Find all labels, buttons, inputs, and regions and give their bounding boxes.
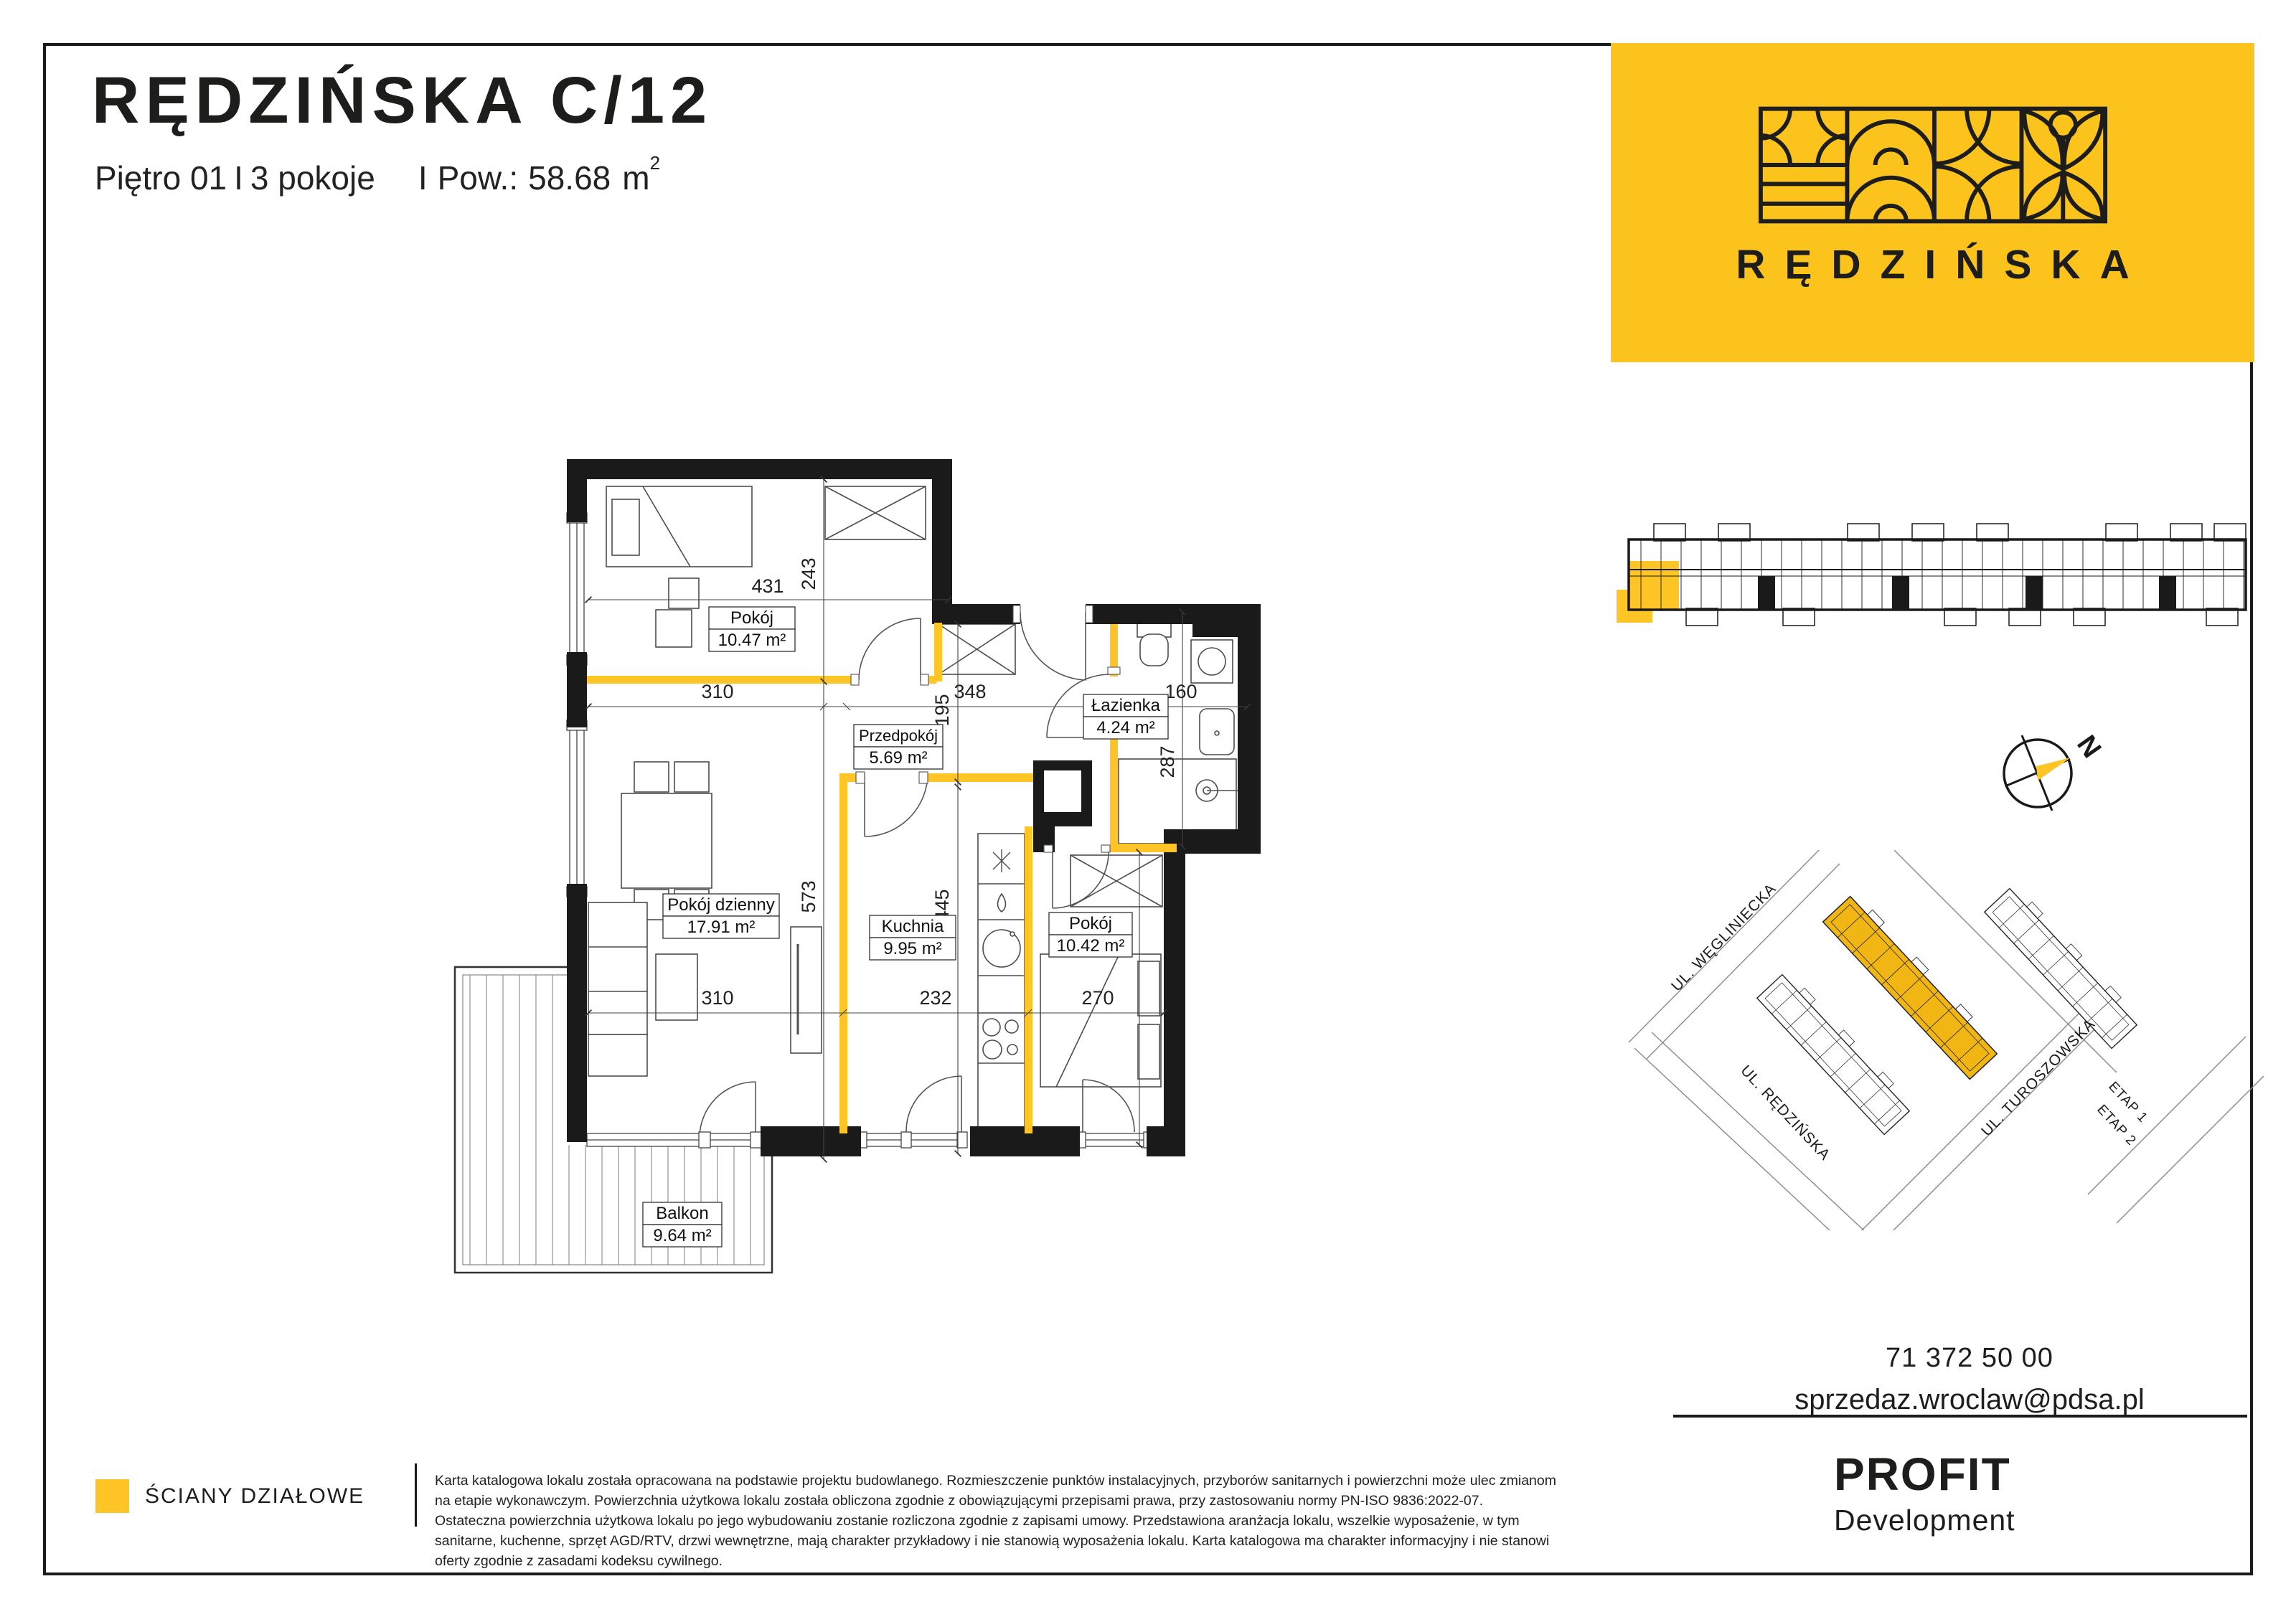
shaft bbox=[1044, 770, 1081, 812]
svg-text:4.24 m²: 4.24 m² bbox=[1096, 718, 1154, 737]
developer-subname: Development bbox=[1834, 1504, 2015, 1537]
dim-348: 348 bbox=[954, 681, 986, 702]
building-level-plan bbox=[1611, 495, 2257, 649]
room-label-kuchnia: Kuchnia 9.95 m² bbox=[870, 915, 956, 960]
developer-name: PROFIT bbox=[1834, 1448, 2015, 1501]
desk bbox=[656, 610, 692, 647]
developer-logo: PROFIT Development bbox=[1834, 1448, 2015, 1537]
room-label-lazienka: Łazienka 4.24 m² bbox=[1083, 694, 1168, 739]
room-label-pokoj2: Pokój 10.42 m² bbox=[1049, 913, 1132, 957]
svg-text:5.69 m²: 5.69 m² bbox=[869, 748, 927, 768]
separator: I bbox=[418, 159, 428, 197]
catalog-card: RĘDZIŃSKA C/12 Piętro 01I3 pokojeIPow.:5… bbox=[0, 0, 2296, 1622]
svg-text:10.47 m²: 10.47 m² bbox=[718, 631, 786, 650]
wardrobe-icon bbox=[825, 486, 926, 539]
brand-banner: RĘDZIŃSKA bbox=[1611, 43, 2254, 362]
brand-logo-icon bbox=[1757, 105, 2109, 225]
dim-310-bottom: 310 bbox=[701, 987, 733, 1009]
floor-plan: 431 243 310 348 160 195 287 573 445 310 … bbox=[438, 430, 1284, 1291]
page-title: RĘDZIŃSKA C/12 bbox=[92, 63, 712, 138]
wardrobe-icon bbox=[938, 624, 1015, 674]
dim-287: 287 bbox=[1157, 745, 1178, 778]
washing-machine bbox=[1191, 640, 1233, 683]
north-label: N bbox=[2071, 730, 2107, 764]
site-building-white-1 bbox=[1985, 884, 2142, 1049]
tv-cabinet bbox=[791, 927, 822, 1053]
street-wegliniecka: UL. WĘGLINIECKA bbox=[1668, 880, 1779, 994]
email-address: sprzedaz.wroclaw@pdsa.pl bbox=[1683, 1384, 2257, 1416]
window-bedroom-bottom bbox=[1076, 1132, 1154, 1148]
dim-195: 195 bbox=[931, 694, 953, 726]
legend-label: ŚCIANY DZIAŁOWE bbox=[145, 1484, 364, 1509]
site-map: UL. WĘGLINIECKA UL. RĘDZIŃSKA UL. TUROSZ… bbox=[1614, 850, 2267, 1230]
contact-block: 71 372 50 00 sprzedaz.wroclaw@pdsa.pl bbox=[1683, 1343, 2257, 1416]
window-kitchen-bottom bbox=[857, 1132, 967, 1148]
separator: I bbox=[234, 159, 243, 197]
svg-text:9.64 m²: 9.64 m² bbox=[653, 1226, 711, 1245]
chair bbox=[669, 578, 699, 608]
svg-text:Przedpokój: Przedpokój bbox=[859, 727, 938, 745]
room-label-przedpokoj: Przedpokój 5.69 m² bbox=[854, 725, 943, 769]
dim-243: 243 bbox=[798, 557, 819, 590]
dim-431: 431 bbox=[751, 575, 784, 597]
svg-text:Kuchnia: Kuchnia bbox=[882, 917, 944, 936]
area-label: Pow.: bbox=[438, 159, 519, 197]
floor-label: Piętro 01 bbox=[95, 159, 227, 197]
window-room1 bbox=[567, 513, 587, 665]
legend-divider bbox=[415, 1463, 417, 1527]
partition-wall-swatch bbox=[95, 1479, 129, 1513]
area-value: 58.68 bbox=[528, 159, 611, 197]
dim-310-top: 310 bbox=[701, 681, 733, 702]
north-arrow-icon bbox=[2036, 758, 2071, 781]
kitchen-counter bbox=[978, 834, 1025, 1132]
brand-name: RĘDZIŃSKA bbox=[1716, 241, 2149, 288]
rooms-label: 3 pokoje bbox=[250, 159, 375, 197]
phone-number: 71 372 50 00 bbox=[1683, 1343, 2257, 1374]
room-label-pokoj-dzienny: Pokój dzienny 17.91 m² bbox=[663, 894, 779, 938]
svg-text:Pokój dzienny: Pokój dzienny bbox=[667, 895, 774, 915]
area-unit: m2 bbox=[622, 159, 660, 197]
svg-text:17.91 m²: 17.91 m² bbox=[687, 918, 756, 937]
svg-text:Pokój: Pokój bbox=[730, 608, 773, 628]
compass: N bbox=[1966, 710, 2152, 839]
svg-text:10.42 m²: 10.42 m² bbox=[1057, 936, 1125, 956]
apartment-summary: Piętro 01I3 pokojeIPow.:58.68m2 bbox=[95, 152, 660, 197]
svg-text:Łazienka: Łazienka bbox=[1091, 696, 1161, 715]
dim-573: 573 bbox=[798, 880, 819, 913]
svg-text:Pokój: Pokój bbox=[1069, 914, 1112, 933]
room-label-balkon: Balkon 9.64 m² bbox=[643, 1202, 722, 1247]
divider-line bbox=[1673, 1415, 2247, 1418]
sofa bbox=[588, 902, 647, 1076]
dim-160: 160 bbox=[1165, 681, 1197, 702]
sink bbox=[1200, 709, 1234, 755]
disclaimer-text: Karta katalogowa lokalu została opracowa… bbox=[435, 1471, 1558, 1571]
dim-270: 270 bbox=[1081, 987, 1114, 1009]
bed-double bbox=[1040, 954, 1161, 1087]
street-redzinska: UL. RĘDZIŃSKA bbox=[1737, 1062, 1833, 1164]
window-living-side bbox=[567, 720, 587, 897]
legend: ŚCIANY DZIAŁOWE bbox=[95, 1479, 364, 1513]
toilet bbox=[1140, 634, 1168, 666]
dim-232: 232 bbox=[919, 987, 951, 1009]
coffee-table bbox=[656, 954, 697, 1020]
svg-text:9.95 m²: 9.95 m² bbox=[883, 939, 941, 958]
street-labels: UL. WĘGLINIECKA UL. RĘDZIŃSKA UL. TUROSZ… bbox=[1668, 880, 2150, 1164]
street-turoszowska: UL. TUROSZOWSKA bbox=[1978, 1016, 2099, 1140]
window-living-bottom bbox=[587, 1132, 762, 1148]
svg-text:Balkon: Balkon bbox=[656, 1204, 708, 1223]
room-label-pokoj1: Pokój 10.47 m² bbox=[709, 607, 795, 651]
